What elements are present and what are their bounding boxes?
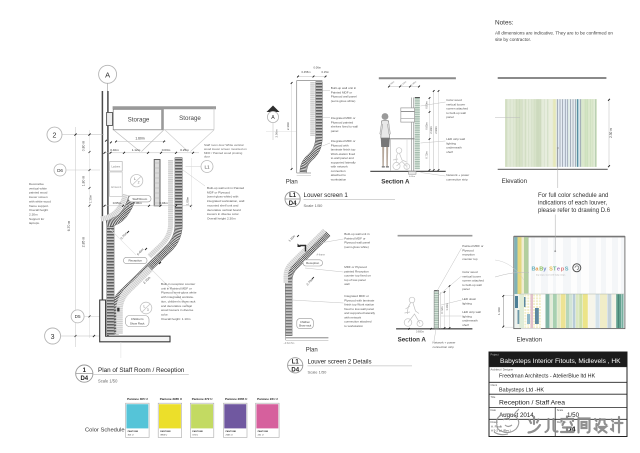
svg-text:D4: D4 [289, 201, 297, 207]
svg-text:Plan: Plan [286, 180, 298, 186]
svg-text:2.30m: 2.30m [429, 126, 433, 134]
svg-text:0.72m: 0.72m [425, 151, 429, 158]
svg-text:connection strip: connection strip [433, 345, 455, 349]
svg-text:2.30m: 2.30m [286, 121, 290, 130]
svg-text:3: 3 [147, 308, 149, 312]
svg-text:1.10m: 1.10m [288, 234, 297, 243]
svg-text:Storage: Storage [128, 117, 150, 124]
svg-text:0.65m: 0.65m [425, 122, 429, 129]
svg-text:(semi-gloss white): (semi-gloss white) [344, 245, 369, 249]
svg-text:Section A: Section A [381, 179, 410, 186]
svg-text:2.90m: 2.90m [434, 126, 438, 134]
svg-text:to workstation: to workstation [344, 324, 363, 328]
svg-text:D6: D6 [57, 168, 63, 173]
svg-text:wall: wall [344, 282, 350, 286]
svg-text:0.03m: 0.03m [162, 148, 171, 152]
svg-text:site by contractor.: site by contractor. [495, 37, 531, 42]
svg-text:PANTONE: PANTONE [128, 430, 139, 433]
svg-text:panel: panel [331, 129, 339, 133]
svg-text:PANTONE: PANTONE [192, 430, 203, 433]
svg-text:panel: panel [462, 287, 470, 291]
svg-text:3: 3 [51, 334, 55, 341]
svg-text:0.40m: 0.40m [389, 81, 395, 87]
svg-text:2665 U: 2665 U [226, 434, 233, 436]
svg-text:0.03m: 0.03m [159, 201, 168, 205]
svg-text:For full color schedule and: For full color schedule and [538, 193, 608, 199]
svg-text:Babysteps Ltd -HK: Babysteps Ltd -HK [499, 388, 544, 394]
svg-text:Color Schedule: Color Schedule [85, 428, 125, 434]
svg-text:0.06m: 0.06m [409, 176, 415, 178]
svg-text:Scale 1/50: Scale 1/50 [308, 370, 328, 375]
svg-text:231 U: 231 U [258, 434, 264, 436]
svg-text:6.70 m: 6.70 m [67, 221, 71, 232]
svg-text:0.65m: 0.65m [113, 201, 122, 205]
svg-text:0.40m: 0.40m [110, 148, 119, 152]
svg-text:Date: Date [491, 408, 497, 412]
svg-text:1.12m: 1.12m [132, 148, 141, 152]
svg-text:A: A [271, 115, 275, 121]
svg-text:(semi-gloss white): (semi-gloss white) [331, 99, 356, 103]
svg-text:Pantone 305 U: Pantone 305 U [127, 397, 148, 401]
svg-text:connection strip: connection strip [446, 177, 468, 181]
svg-text:Architect / Designer: Architect / Designer [491, 367, 514, 371]
svg-text:Reception: Reception [306, 261, 319, 265]
svg-text:shelf: shelf [462, 323, 469, 327]
svg-text:big steps start with baby step: big steps start with baby steps [536, 274, 566, 277]
svg-text:Lockers: Lockers [112, 166, 122, 169]
svg-text:Elevation: Elevation [502, 178, 528, 185]
svg-text:PANTONE: PANTONE [226, 430, 237, 433]
svg-text:Children: Children [300, 320, 311, 324]
svg-text:2.06m: 2.06m [275, 129, 279, 138]
svg-text:L1: L1 [204, 164, 210, 169]
svg-text:PANTONE: PANTONE [258, 430, 269, 433]
svg-text:0.455m: 0.455m [302, 70, 312, 74]
svg-text:PANTONE: PANTONE [160, 430, 171, 433]
svg-text:D4: D4 [80, 376, 88, 382]
svg-text:Scale: Scale [557, 408, 564, 412]
svg-text:Plan of Staff Room / Reception: Plan of Staff Room / Reception [98, 367, 185, 374]
svg-text:Reception / Staff Area: Reception / Staff Area [499, 400, 565, 407]
svg-text:Pantone 372 U: Pantone 372 U [192, 397, 213, 401]
svg-text:0.06m: 0.06m [314, 66, 322, 70]
svg-text:lighting: lighting [462, 301, 472, 305]
svg-text:A: A [105, 70, 110, 79]
svg-text:Louver screen 1: Louver screen 1 [304, 192, 349, 199]
svg-text:372 U: 372 U [192, 434, 198, 436]
svg-text:2.30 m: 2.30 m [609, 128, 613, 138]
svg-text:Notes:: Notes: [495, 20, 514, 27]
svg-text:D4: D4 [291, 368, 299, 374]
svg-text:D5: D5 [75, 314, 81, 319]
svg-text:Pantone 231 U: Pantone 231 U [257, 397, 278, 401]
svg-text:0.25m: 0.25m [180, 148, 189, 152]
svg-text:Overall height 2.30m: Overall height 2.30m [207, 216, 236, 220]
svg-text:Drawn: Drawn [491, 420, 499, 424]
svg-text:please refer to drawing D.6: please refer to drawing D.6 [538, 208, 611, 214]
svg-text:0.35m: 0.35m [411, 81, 417, 87]
svg-text:Overall height: 1.10m: Overall height: 1.10m [161, 317, 191, 321]
svg-text:L: L [144, 304, 146, 308]
svg-text:shelf: shelf [446, 150, 453, 154]
svg-text:Elevation: Elevation [517, 337, 543, 344]
svg-text:A-frame: A-frame [317, 254, 326, 257]
svg-text:Plan: Plan [306, 348, 318, 354]
svg-text:2: 2 [53, 132, 57, 139]
svg-text:Pantone 2665 U: Pantone 2665 U [225, 397, 247, 401]
svg-text:L: L [134, 177, 136, 181]
svg-text:indications of each louver,: indications of each louver, [538, 201, 607, 207]
svg-text:Scale 1/50: Scale 1/50 [98, 379, 118, 384]
svg-text:Show Rack: Show Rack [130, 321, 145, 325]
svg-text:0.72m: 0.72m [440, 306, 444, 313]
svg-text:laptops.: laptops. [29, 221, 40, 225]
svg-text:305 U: 305 U [128, 434, 134, 436]
svg-text:2.06m: 2.06m [133, 201, 142, 205]
svg-text:Louver screen 2 Details: Louver screen 2 Details [308, 358, 372, 365]
svg-text:1.10m: 1.10m [445, 303, 449, 310]
svg-text:S: S [565, 267, 569, 273]
svg-text:Project: Project [491, 352, 499, 356]
svg-text:Client: Client [491, 383, 498, 387]
svg-text:~0.5x0.5m: ~0.5x0.5m [284, 343, 295, 345]
svg-text:1.00m: 1.00m [186, 196, 190, 205]
svg-text:Freedman Architects - Atelier: Freedman Architects - AtelierBlue ltd HK [499, 373, 596, 379]
svg-text:counter top: counter top [462, 257, 478, 261]
svg-text:panel: panel [446, 115, 454, 119]
svg-text:Storage: Storage [179, 115, 201, 122]
svg-text:e: e [557, 267, 560, 273]
svg-text:Babysteps Interior Fitouts, Mi: Babysteps Interior Fitouts, Midlevels , … [500, 358, 621, 365]
svg-text:workstation: workstation [331, 177, 347, 181]
svg-text:Pantone 3965 U: Pantone 3965 U [160, 397, 182, 401]
svg-text:1.35m: 1.35m [89, 194, 93, 203]
svg-text:L1: L1 [289, 193, 297, 199]
svg-text:1.80 m: 1.80 m [82, 176, 86, 187]
svg-text:0.80 m: 0.80 m [82, 141, 86, 152]
svg-text:All dimensions are indicative.: All dimensions are indicative. They are … [495, 31, 613, 36]
svg-text:Scale 1/50: Scale 1/50 [304, 203, 324, 208]
svg-text:2.85 m: 2.85 m [82, 237, 86, 248]
svg-text:1.60m: 1.60m [135, 137, 144, 141]
svg-text:3965 U: 3965 U [160, 434, 167, 436]
svg-text:0.10m: 0.10m [401, 81, 407, 87]
svg-text:0.15m: 0.15m [322, 70, 330, 74]
svg-text:2: 2 [138, 181, 140, 185]
svg-text:L1: L1 [292, 360, 300, 366]
svg-text:Reception: Reception [128, 259, 142, 263]
svg-text:Section A: Section A [398, 337, 427, 344]
svg-text:Show rack: Show rack [299, 324, 312, 328]
svg-text:0.45m: 0.45m [136, 247, 145, 256]
svg-text:0.600m: 0.600m [416, 331, 424, 334]
svg-text:Armrest 1: Armrest 1 [111, 186, 122, 189]
svg-text:Title: Title [491, 395, 496, 399]
svg-text:1.10m: 1.10m [497, 306, 501, 315]
svg-text:door: door [204, 155, 210, 159]
